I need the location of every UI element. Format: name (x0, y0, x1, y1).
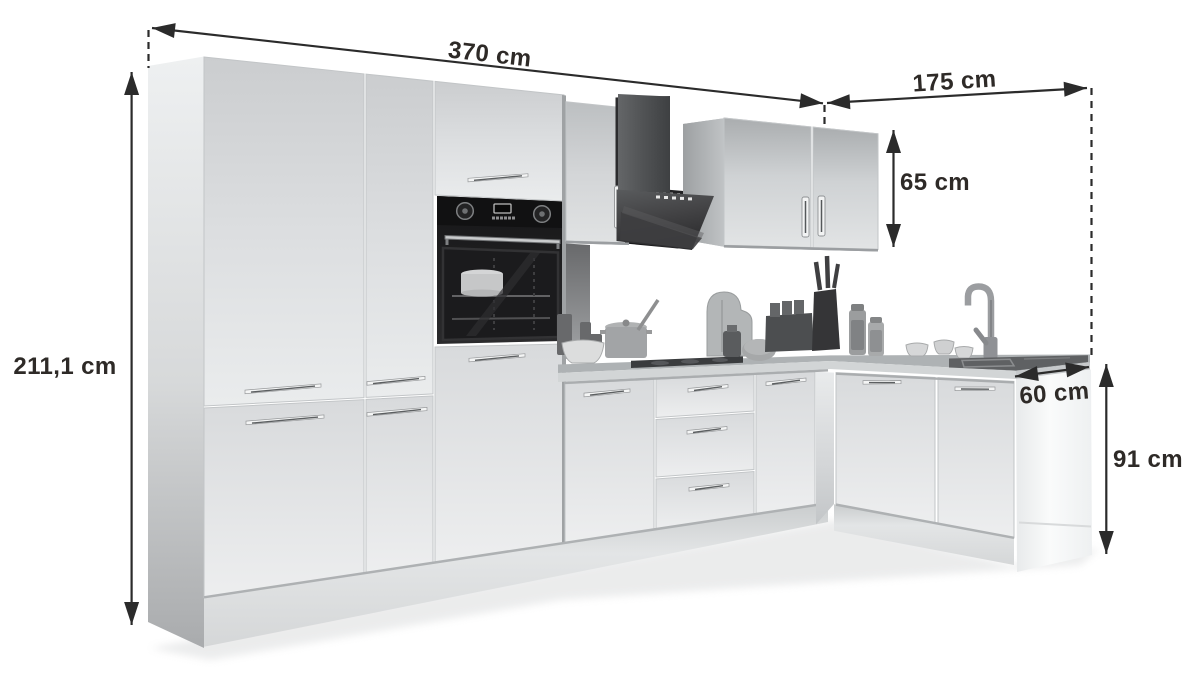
svg-text:91 cm: 91 cm (1113, 446, 1183, 473)
svg-text:211,1 cm: 211,1 cm (13, 353, 116, 380)
svg-text:65 cm: 65 cm (900, 169, 970, 196)
svg-text:60 cm: 60 cm (1018, 377, 1090, 409)
svg-text:175 cm: 175 cm (912, 65, 997, 97)
